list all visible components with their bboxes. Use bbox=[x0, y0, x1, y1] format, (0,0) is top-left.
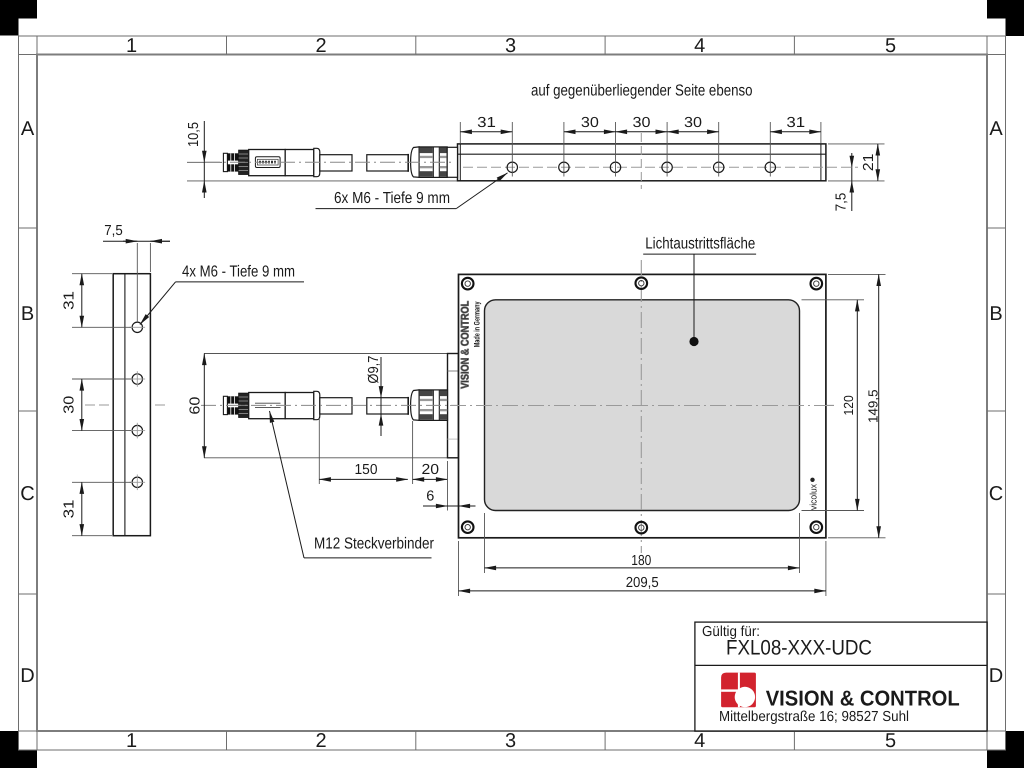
svg-text:A: A bbox=[989, 118, 1003, 140]
svg-text:M12 Steckverbinder: M12 Steckverbinder bbox=[314, 536, 435, 553]
svg-text:C: C bbox=[20, 483, 34, 505]
svg-text:4x M6 - Tiefe 9 mm: 4x M6 - Tiefe 9 mm bbox=[182, 263, 295, 280]
svg-text:31: 31 bbox=[62, 500, 78, 519]
svg-text:FXL08-XXX-UDC: FXL08-XXX-UDC bbox=[726, 637, 872, 660]
svg-text:4: 4 bbox=[694, 35, 705, 57]
svg-text:3: 3 bbox=[505, 730, 516, 752]
svg-text:B: B bbox=[989, 303, 1002, 325]
svg-text:21: 21 bbox=[861, 154, 877, 172]
svg-text:120: 120 bbox=[841, 395, 856, 415]
svg-text:7,5: 7,5 bbox=[104, 223, 123, 239]
svg-text:30: 30 bbox=[684, 115, 702, 131]
svg-text:Lichtaustrittsfläche: Lichtaustrittsfläche bbox=[645, 236, 755, 253]
svg-text:31: 31 bbox=[786, 115, 805, 131]
svg-text:150: 150 bbox=[355, 462, 378, 478]
svg-text:3: 3 bbox=[505, 35, 516, 57]
svg-text:2: 2 bbox=[315, 35, 326, 57]
svg-text:1: 1 bbox=[126, 730, 137, 752]
svg-text:6: 6 bbox=[426, 488, 434, 504]
svg-text:60: 60 bbox=[187, 397, 203, 415]
svg-text:30: 30 bbox=[581, 115, 599, 131]
svg-text:Mittelbergstraße 16; 98527 Suh: Mittelbergstraße 16; 98527 Suhl bbox=[719, 709, 909, 725]
svg-text:4: 4 bbox=[694, 730, 705, 752]
svg-text:149,5: 149,5 bbox=[866, 389, 881, 423]
svg-text:31: 31 bbox=[477, 115, 496, 131]
svg-text:209,5: 209,5 bbox=[626, 575, 659, 591]
svg-text:D: D bbox=[989, 665, 1003, 687]
svg-text:C: C bbox=[989, 483, 1003, 505]
svg-text:auf gegenüberliegender Seite e: auf gegenüberliegender Seite ebenso bbox=[531, 83, 753, 100]
svg-text:5: 5 bbox=[885, 35, 896, 57]
svg-text:5: 5 bbox=[885, 730, 896, 752]
svg-text:A: A bbox=[21, 118, 35, 140]
svg-text:Ø9,7: Ø9,7 bbox=[366, 356, 382, 384]
svg-text:7,5: 7,5 bbox=[833, 193, 849, 212]
svg-text:Made in Germany: Made in Germany bbox=[473, 301, 482, 347]
svg-text:VISION & CONTROL: VISION & CONTROL bbox=[459, 301, 471, 389]
svg-text:20: 20 bbox=[422, 462, 440, 478]
svg-text:1: 1 bbox=[126, 35, 137, 57]
svg-text:10,5: 10,5 bbox=[186, 122, 202, 147]
svg-text:vicolux: vicolux bbox=[809, 484, 820, 510]
svg-text:6x M6 - Tiefe 9 mm: 6x M6 - Tiefe 9 mm bbox=[334, 190, 450, 207]
svg-text:31: 31 bbox=[62, 291, 78, 310]
svg-text:180: 180 bbox=[631, 553, 651, 569]
svg-text:B: B bbox=[21, 303, 34, 325]
svg-text:2: 2 bbox=[315, 730, 326, 752]
svg-text:VISION & CONTROL: VISION & CONTROL bbox=[766, 687, 960, 711]
svg-text:D: D bbox=[20, 665, 34, 687]
svg-text:30: 30 bbox=[633, 115, 651, 131]
svg-text:30: 30 bbox=[62, 396, 78, 414]
